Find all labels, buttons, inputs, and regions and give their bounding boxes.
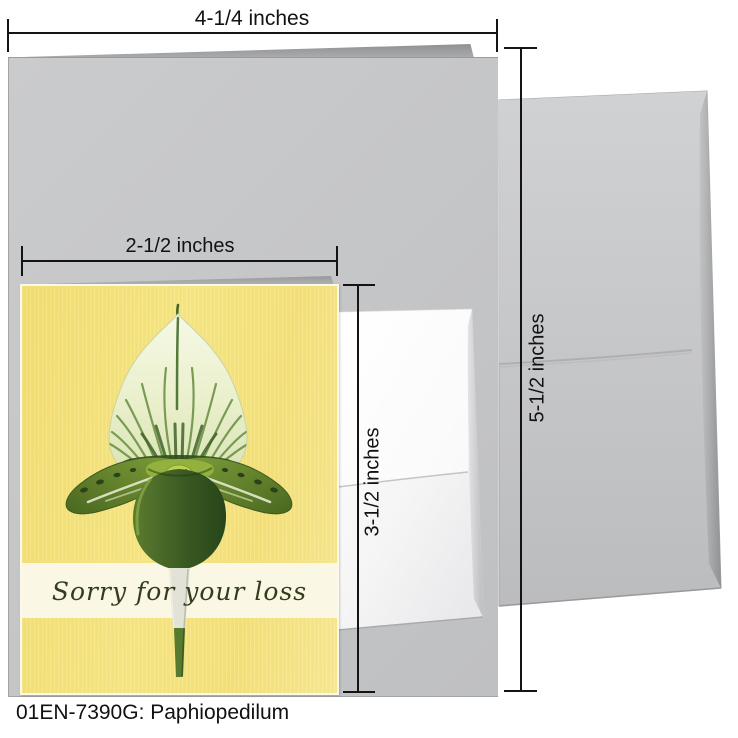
product-code: 01EN-7390G: Paphiopedilum bbox=[16, 701, 289, 725]
card-back-edge bbox=[26, 44, 474, 58]
dimension-line-front-width bbox=[22, 260, 338, 262]
dimension-label-card-height: 5-1/2 inches bbox=[527, 314, 550, 423]
dimension-line-front-height bbox=[357, 285, 359, 693]
dimension-label-card-open-width: 4-1/4 inches bbox=[195, 7, 309, 31]
dorsal-sepal bbox=[109, 305, 248, 471]
card-front: Sorry for your loss bbox=[20, 284, 339, 695]
dimension-tick bbox=[336, 246, 338, 276]
dimension-tick bbox=[343, 284, 375, 286]
orchid-illustration bbox=[20, 284, 339, 695]
dimension-tick bbox=[343, 691, 375, 693]
product-image: Sorry for your loss 4-1/4 inches 2-1/2 i… bbox=[0, 0, 738, 738]
small-envelope bbox=[330, 303, 490, 635]
dimension-tick bbox=[496, 19, 498, 52]
dimension-label-front-height: 3-1/2 inches bbox=[362, 428, 385, 537]
dimension-tick bbox=[504, 47, 537, 49]
dimension-line-card-height bbox=[520, 48, 522, 692]
dimension-tick bbox=[7, 19, 9, 52]
card-message: Sorry for your loss bbox=[20, 577, 339, 606]
dimension-line-card-open-width bbox=[8, 32, 498, 34]
dimension-tick bbox=[21, 246, 23, 276]
dimension-tick bbox=[504, 690, 537, 692]
dimension-label-front-width: 2-1/2 inches bbox=[126, 235, 235, 258]
